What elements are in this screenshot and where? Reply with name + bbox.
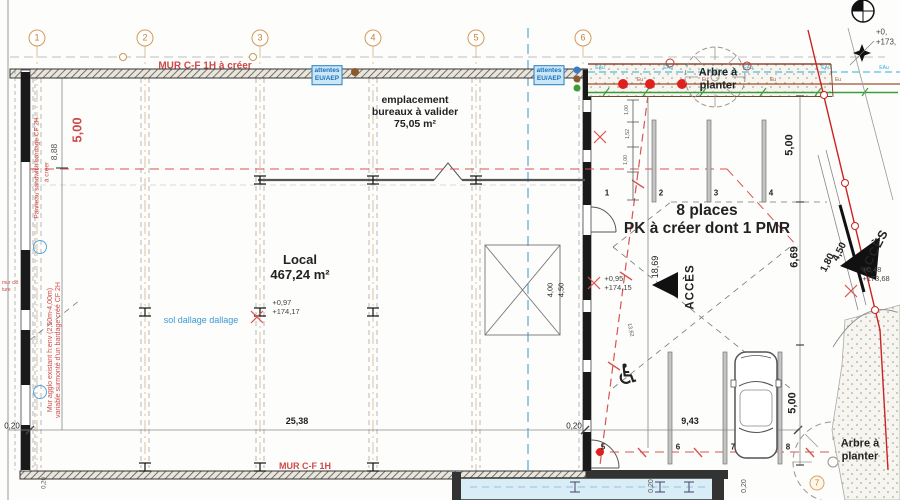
level-marker-icon — [33, 240, 47, 254]
dim-0-20: 0,20 — [566, 421, 582, 430]
sol-dallage-label: sol dallage dallage — [164, 315, 239, 325]
note-fence-line1: mur clô — [2, 280, 18, 287]
level-rel: +0,97 — [272, 298, 299, 307]
dim-0-20: 0,20 — [741, 479, 749, 493]
north-arrow-icon — [852, 0, 874, 22]
attentes-eu-aep-label-2: attentes EU/AEP — [534, 65, 565, 85]
level-rel: +0,48 — [862, 265, 889, 274]
stall-number: 4 — [769, 188, 773, 197]
utility-sewer-label: Eu — [637, 78, 643, 84]
stall-number: 2 — [659, 188, 663, 197]
tree-label-bottom: Arbre à planter — [841, 437, 880, 462]
note-mur-agglo: Mur agglo existant h:env (2,50m-4,00m) v… — [47, 282, 63, 418]
utility-water-label: EAu — [663, 66, 672, 72]
level-abs: +173, — [876, 37, 896, 47]
dim-4-50: 4,50 — [558, 283, 567, 298]
dim-5-00-bottom: 5,00 — [787, 392, 800, 413]
level-abs: +174,15 — [604, 283, 631, 292]
level-marker-icon — [33, 385, 47, 399]
dim-8-88: 8,88 — [50, 144, 60, 161]
dim-1-00: 1,00 — [625, 105, 631, 115]
attentes-eu-aep-label-1: attentes EU/AEP — [312, 65, 343, 85]
utility-water-label: EAu — [595, 66, 604, 72]
plan-linework — [0, 0, 900, 500]
stall-number: 8 — [786, 442, 790, 451]
tree-line1: Arbre à — [841, 437, 880, 450]
bureaux-line2: bureaux à valider — [372, 106, 458, 118]
parking-line1: 8 places — [624, 202, 790, 220]
grid-bubble-6: 6 — [575, 30, 592, 47]
note-fence-line2: ture — [2, 287, 18, 294]
local-label: Local 467,24 m² — [270, 253, 329, 283]
level-abs: +174,17 — [272, 307, 299, 316]
parking-label: 8 places PK à créer dont 1 PMR — [624, 202, 790, 238]
bureaux-area: 75,05 m² — [372, 118, 458, 130]
stall-number: 5 — [601, 442, 605, 451]
access-label-parking: ACCÈS — [684, 264, 697, 309]
stall-number: 3 — [714, 188, 718, 197]
level-rel: +0, — [876, 27, 896, 37]
dim-1-00: 1,00 — [624, 155, 630, 165]
floor-plan: 1 2 3 4 5 6 MUR C-F 1H à créer MUR C-F 1… — [0, 0, 900, 500]
level-marker-parking: +0,95 +174,15 — [604, 274, 631, 292]
wheelchair-icon: ♿ — [615, 359, 640, 391]
level-marker-access: +0,48 +173,68 — [862, 265, 889, 283]
dim-1-52: 1,52 — [626, 129, 632, 139]
dim-18-69: 18,69 — [650, 256, 660, 279]
note-mur-line2: variable surmonté d'un bardage créé CF 2… — [55, 282, 63, 418]
dim-4-00: 4,00 — [547, 283, 556, 298]
dim-5-00-top: 5,00 — [784, 134, 797, 155]
level-marker-local: +0,97 +174,17 — [272, 298, 299, 316]
survey-point-icon — [850, 41, 874, 65]
dim-5-00-left: 5,00 — [71, 117, 86, 142]
dim-6-69: 6,69 — [789, 246, 802, 267]
dim-0-20: 0,20 — [4, 421, 20, 430]
utility-water-label: EAu — [879, 66, 888, 72]
dim-9-43: 9,43 — [681, 416, 699, 426]
grid-bubble-3: 3 — [252, 30, 269, 47]
local-area: 467,24 m² — [270, 268, 329, 283]
bureaux-line1: emplacement — [372, 94, 458, 106]
attentes-line2: EU/AEP — [315, 75, 340, 83]
note-fence: mur clô ture — [2, 280, 18, 294]
dim-0-20: 0,20 — [42, 477, 49, 489]
stall-number: 7 — [731, 442, 735, 451]
utility-sewer-label: Eu — [702, 78, 708, 84]
utility-water-label: EAu — [821, 66, 830, 72]
utility-water-label: EAu — [743, 66, 752, 72]
level-abs: +173,68 — [862, 274, 889, 283]
circled-7-marker: 7 — [810, 476, 825, 491]
grid-bubble-1: 1 — [29, 30, 46, 47]
utility-sewer-label: Eu — [770, 78, 776, 84]
stall-number: 1 — [605, 188, 609, 197]
grid-bubble-5: 5 — [468, 30, 485, 47]
attentes-line2: EU/AEP — [537, 75, 562, 83]
attentes-line1: attentes — [537, 67, 562, 75]
attentes-line1: attentes — [315, 67, 340, 75]
note-panel: Panneau sandwich bardage CF 2H — [33, 117, 40, 218]
grid-bubble-2: 2 — [137, 30, 154, 47]
tree-line2: planter — [841, 450, 880, 463]
stall-number: 6 — [676, 442, 680, 451]
bureaux-zone-label: emplacement bureaux à valider 75,05 m² — [372, 94, 458, 130]
note-mur-line1: Mur agglo existant h:env (2,50m-4,00m) — [47, 282, 55, 418]
note-a-creer: à créer — [43, 162, 50, 182]
utility-sewer-label: Eu — [835, 78, 841, 84]
wall-top-label: MUR C-F 1H à créer — [158, 60, 251, 72]
wall-bottom-label: MUR C-F 1H — [279, 461, 331, 471]
dim-25-38: 25,38 — [286, 416, 309, 426]
level-rel: +0,95 — [604, 274, 631, 283]
parking-line2: PK à créer dont 1 PMR — [624, 220, 790, 238]
local-name: Local — [270, 253, 329, 268]
car-icon — [731, 352, 781, 458]
dim-0-20: 0,20 — [648, 479, 656, 493]
grid-bubble-4: 4 — [365, 30, 382, 47]
level-marker-corner: +0, +173, — [876, 27, 896, 46]
